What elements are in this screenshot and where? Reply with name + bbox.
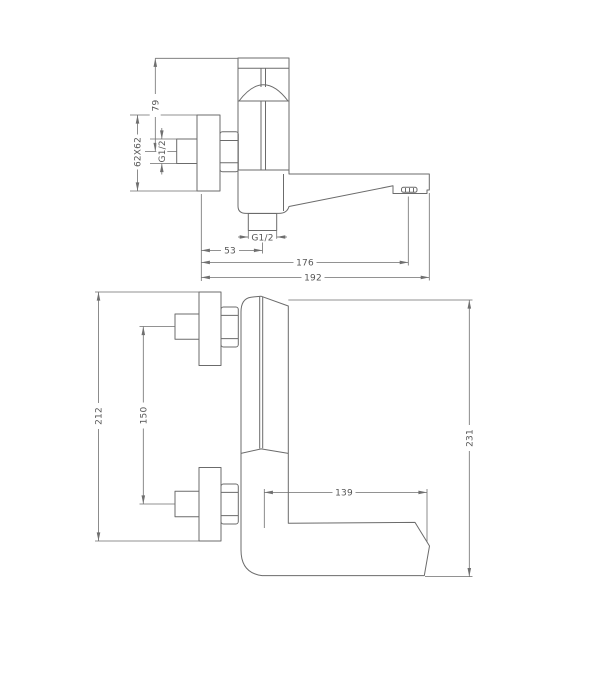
upper-nut-facets	[221, 315, 238, 338]
dim-53-label: 53	[224, 247, 236, 257]
wall-plate-side	[197, 115, 220, 191]
front-view-dimensions: 212 150 139 231	[93, 292, 476, 577]
handle-lever-cap	[238, 58, 289, 68]
cartridge-seam-lines	[261, 101, 266, 170]
upper-wall-plate	[199, 292, 221, 366]
side-view: 79 62X62 G1/2 G1/2 53 176 192	[130, 58, 429, 284]
technical-drawing-canvas: 79 62X62 G1/2 G1/2 53 176 192	[0, 0, 600, 673]
dim-150-label: 150	[140, 407, 150, 425]
body-and-spout-outline	[241, 296, 430, 575]
mounting-nut-facets	[220, 141, 238, 163]
dim-g12-outlet-label: G1/2	[251, 234, 273, 244]
wall-inlet-thread	[177, 139, 197, 164]
mounting-nut-side	[220, 132, 238, 172]
dim-139-label: 139	[335, 489, 353, 499]
body-chamfer-edges	[260, 297, 263, 449]
lower-inlet-thread	[175, 491, 199, 516]
spout-outlet-thread	[248, 214, 276, 231]
lower-wall-plate	[199, 468, 221, 542]
technical-drawing-page: 79 62X62 G1/2 G1/2 53 176 192	[0, 0, 600, 673]
upper-inlet-thread	[175, 314, 199, 339]
dim-231-label: 231	[466, 429, 476, 447]
front-view: 212 150 139 231	[93, 292, 476, 577]
ext-lines-overall-height	[288, 300, 472, 577]
dim-62x62-label: 62X62	[134, 137, 144, 167]
dim-79-label: 79	[152, 100, 162, 112]
dim-g12-inlet-label: G1/2	[158, 140, 168, 162]
dim-212-label: 212	[95, 407, 105, 425]
spout-housing-outline	[238, 170, 429, 213]
dim-192-label: 192	[304, 274, 322, 284]
upper-mounting-nut	[221, 307, 238, 347]
handle-dome	[239, 85, 288, 101]
lower-mounting-nut	[221, 484, 238, 524]
body-crease-line	[241, 449, 288, 454]
lower-nut-facets	[221, 492, 238, 515]
cartridge-body	[238, 101, 289, 170]
dim-176-label: 176	[296, 259, 314, 269]
handle-stem-lines	[261, 68, 266, 87]
handle-side-edges	[238, 58, 289, 101]
aerator-grille-hatch	[406, 188, 414, 192]
